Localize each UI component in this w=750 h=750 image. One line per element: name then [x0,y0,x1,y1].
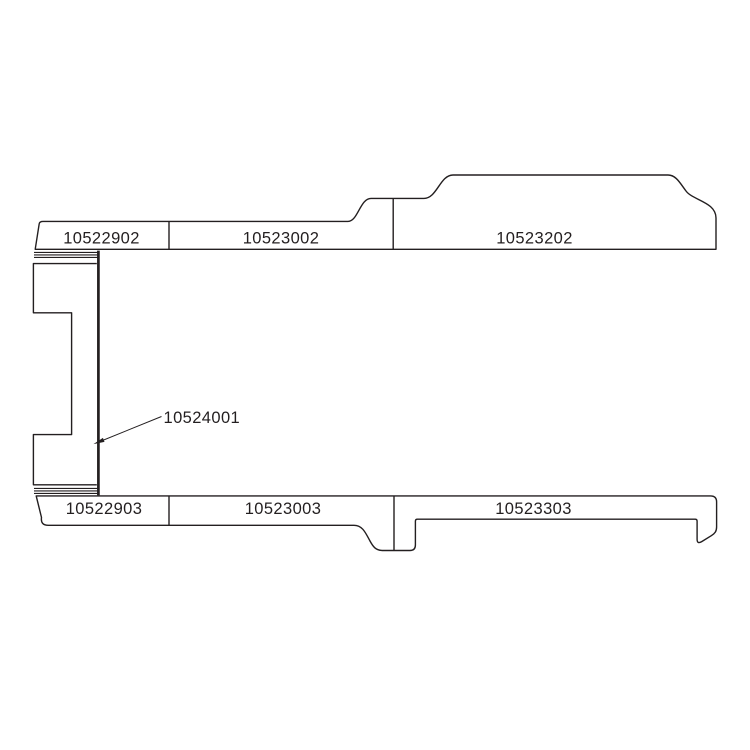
callout-part-label[interactable]: 10524001 [164,409,241,427]
parts-diagram-canvas: 10522902 10523002 10523202 10522903 1052… [0,0,750,750]
bottom-rail-part-label-3[interactable]: 10523303 [495,500,572,518]
callout-leader-line [98,417,162,443]
bottom-rail-part-label-1[interactable]: 10522903 [66,500,143,518]
bottom-rail-part-label-2[interactable]: 10523003 [245,500,322,518]
top-rail-part-label-2[interactable]: 10523002 [243,229,320,247]
hatch-lines-bottom [34,488,99,493]
part-labels: 10522902 10523002 10523202 10522903 1052… [63,229,573,518]
technical-drawing: 10522902 10523002 10523202 10522903 1052… [0,0,750,750]
hatch-lines-top [34,252,99,257]
left-bracket-outline [33,264,96,485]
top-rail-part-label-1[interactable]: 10522902 [63,229,140,247]
top-rail-part-label-3[interactable]: 10523202 [496,229,573,247]
